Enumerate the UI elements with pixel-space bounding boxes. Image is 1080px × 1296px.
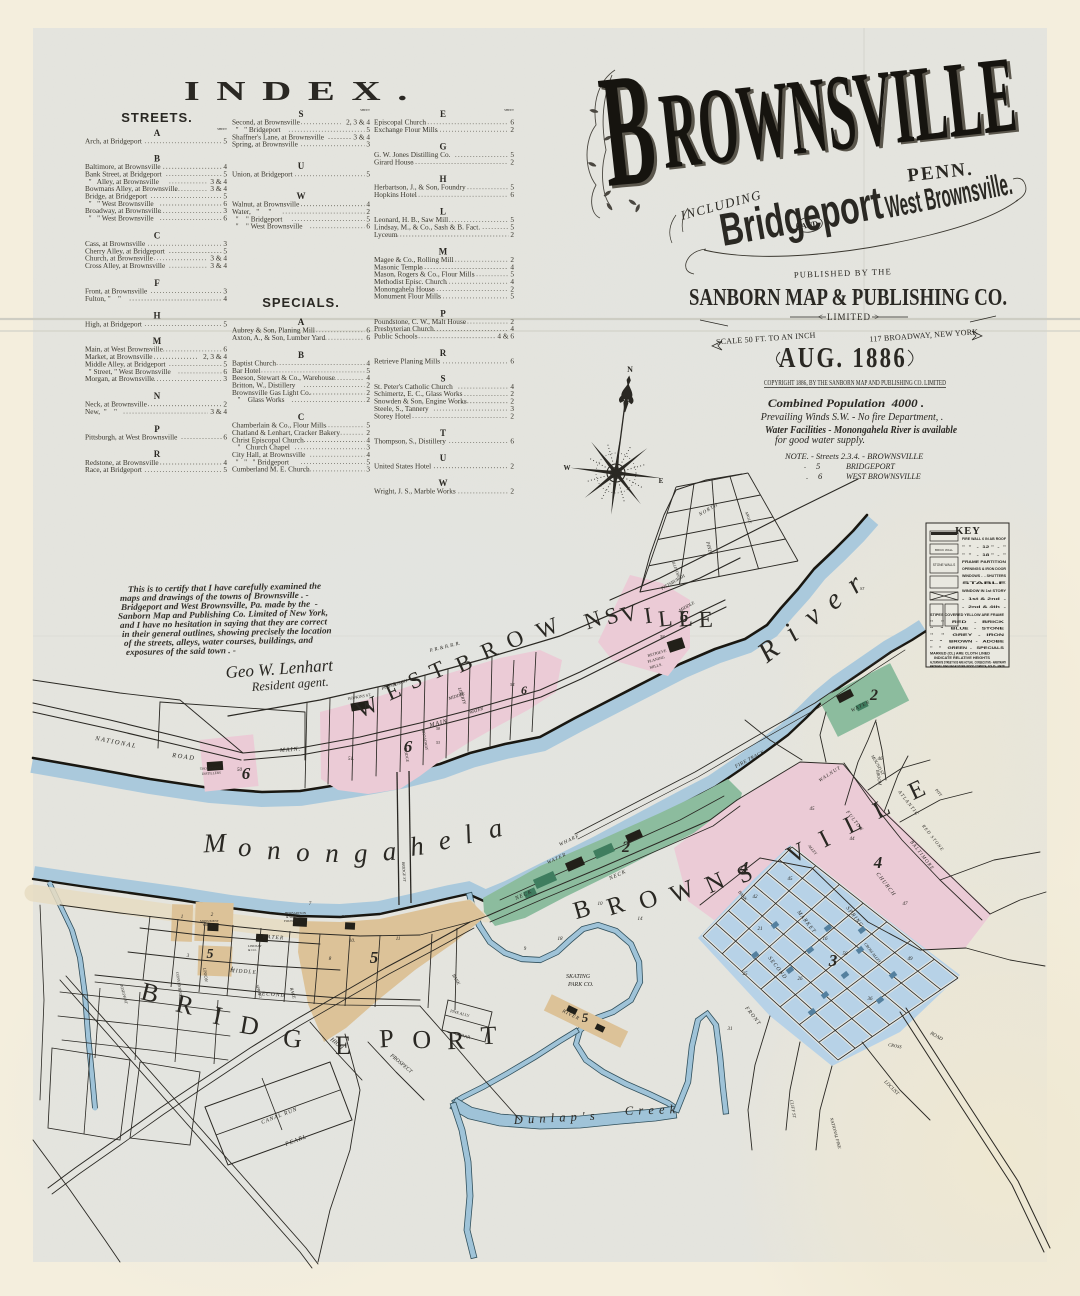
- svg-text:P: P: [379, 1024, 395, 1054]
- svg-text:2: 2: [510, 462, 514, 471]
- svg-text:.: .: [804, 461, 806, 470]
- svg-text:- 1st & 2nd -: - 1st & 2nd -: [962, 597, 1008, 601]
- svg-text:Cumberland M. E. Church: Cumberland M. E. Church: [232, 465, 310, 474]
- svg-text:3: 3: [366, 140, 370, 149]
- svg-text:E: E: [335, 1031, 351, 1060]
- svg-text:C r e e k: C r e e k: [625, 1102, 677, 1118]
- svg-text:WINDOWS - - SHUTTERS: WINDOWS - - SHUTTERS: [962, 574, 1007, 578]
- svg-text:Prevailing Winds S.W. - No fir: Prevailing Winds S.W. - No fire Departme…: [760, 412, 944, 423]
- svg-text:3: 3: [366, 465, 370, 474]
- svg-text:N: N: [627, 365, 633, 374]
- svg-text:.: .: [806, 472, 808, 481]
- svg-text:58: 58: [436, 726, 440, 731]
- svg-text:SHEET: SHEET: [217, 127, 227, 131]
- svg-text:5: 5: [223, 465, 227, 474]
- svg-text:COPYRIGHT 1886, BY THE SANBORN: COPYRIGHT 1886, BY THE SANBORN MAP AND P…: [764, 379, 946, 387]
- svg-text:AUG. 1886: AUG. 1886: [779, 343, 907, 374]
- svg-text:Wright, J. S., Marble Works: Wright, J. S., Marble Works: [374, 487, 456, 496]
- svg-text:6: 6: [242, 764, 251, 783]
- svg-text:6: 6: [521, 683, 527, 697]
- svg-text:for good water supply.: for good water supply.: [775, 435, 865, 446]
- svg-text:MILLS: MILLS: [203, 923, 213, 927]
- svg-text:2: 2: [510, 125, 514, 134]
- svg-text:Public Schools: Public Schools: [374, 332, 418, 341]
- svg-text:Union, at Bridgeport: Union, at Bridgeport: [232, 170, 293, 179]
- svg-text:5: 5: [366, 170, 370, 179]
- svg-text:4: 4: [873, 853, 883, 872]
- svg-text:21: 21: [758, 927, 763, 932]
- svg-text:2: 2: [869, 687, 878, 704]
- svg-text:Thompson, S., Distillery: Thompson, S., Distillery: [374, 436, 446, 445]
- svg-text:NOTE. - Streets 2.3.4. - BROWN: NOTE. - Streets 2.3.4. - BROWNSVILLE: [784, 451, 924, 461]
- svg-text:6: 6: [366, 333, 370, 342]
- svg-text:Combined Population 4000 .: Combined Population 4000 .: [768, 396, 924, 409]
- svg-text:a: a: [382, 836, 398, 867]
- svg-text:E: E: [698, 607, 713, 632]
- svg-text:Axton, A., & Son, Lumber Yard: Axton, A., & Son, Lumber Yard: [232, 333, 326, 342]
- svg-text:U: U: [298, 161, 305, 171]
- svg-text:58: 58: [660, 634, 665, 639]
- svg-text:26: 26: [798, 977, 804, 982]
- svg-text:E: E: [659, 477, 664, 485]
- svg-text:o: o: [237, 832, 252, 862]
- svg-text:6: 6: [366, 222, 370, 231]
- svg-text:Monument Flour Mills: Monument Flour Mills: [374, 292, 441, 301]
- svg-text:BRIDGEPORT: BRIDGEPORT: [846, 462, 895, 471]
- svg-text:High, at Bridgeport: High, at Bridgeport: [85, 319, 142, 328]
- svg-text:2: 2: [366, 395, 370, 404]
- svg-text:STONE WALLS: STONE WALLS: [933, 563, 956, 567]
- svg-text:Hopkins Hotel: Hopkins Hotel: [374, 190, 417, 199]
- svg-text:6: 6: [404, 737, 413, 756]
- svg-text:exposures of the said town . -: exposures of the said town . -: [126, 645, 236, 657]
- svg-text:11: 11: [396, 937, 401, 942]
- svg-text:STABLE: STABLE: [962, 581, 1008, 585]
- svg-text:PARK CO.: PARK CO.: [567, 982, 594, 988]
- svg-text:n: n: [266, 835, 281, 865]
- svg-text:Race, at Bridgeport: Race, at Bridgeport: [85, 465, 142, 474]
- svg-text:" Glass Works: " Glass Works: [232, 395, 285, 404]
- svg-text:" " West Brownsville: " " West Brownsville: [85, 214, 154, 223]
- svg-text:" " RED - BRICK: " " RED - BRICK: [930, 619, 1004, 624]
- svg-text:Spring, at Brownsville: Spring, at Brownsville: [232, 140, 298, 149]
- svg-text:2: 2: [510, 487, 514, 496]
- svg-text:5: 5: [816, 461, 820, 471]
- svg-text:BAR HO.: BAR HO.: [342, 914, 355, 918]
- svg-text:42: 42: [753, 895, 759, 900]
- svg-text:46: 46: [878, 757, 884, 762]
- svg-text:SANBORN MAP & PUBLISHING CO.: SANBORN MAP & PUBLISHING CO.: [689, 284, 1007, 311]
- svg-text:n: n: [325, 838, 339, 868]
- svg-text:Cross Alley, at Brownsville: Cross Alley, at Brownsville: [85, 261, 165, 270]
- svg-text:W: W: [564, 464, 571, 472]
- svg-text:3: 3: [223, 374, 227, 383]
- svg-text:FOUNDRY: FOUNDRY: [284, 919, 300, 923]
- svg-text:" " GREY - IRON: " " GREY - IRON: [930, 632, 1004, 637]
- svg-text:BRICK WALL: BRICK WALL: [935, 548, 953, 552]
- svg-text:44: 44: [850, 837, 856, 842]
- svg-text:2: 2: [510, 411, 514, 420]
- svg-text:R: R: [440, 348, 447, 358]
- svg-text:14: 14: [638, 917, 644, 922]
- svg-text:L: L: [657, 605, 674, 631]
- svg-text:SHEET: SHEET: [504, 108, 514, 112]
- svg-text:MARKED (CL) ARE CLOTH LINED: MARKED (CL) ARE CLOTH LINED: [930, 652, 990, 656]
- svg-text:C: C: [154, 230, 161, 240]
- svg-text:45: 45: [788, 877, 794, 882]
- svg-text:R: R: [447, 1026, 466, 1056]
- svg-text:3: 3: [828, 951, 838, 970]
- svg-text:18: 18: [558, 937, 564, 942]
- svg-text:5: 5: [370, 948, 379, 967]
- svg-text:31: 31: [728, 1027, 733, 1032]
- svg-text:5: 5: [223, 137, 227, 146]
- svg-text:6: 6: [223, 214, 227, 223]
- svg-text:3 & 4: 3 & 4: [210, 261, 227, 270]
- svg-text:6: 6: [510, 190, 514, 199]
- svg-text:6: 6: [223, 432, 227, 441]
- svg-text:2: 2: [621, 839, 630, 856]
- svg-text:45: 45: [810, 807, 816, 812]
- svg-text:Storey Hotel: Storey Hotel: [374, 411, 411, 420]
- svg-text:10.: 10.: [349, 939, 355, 944]
- svg-text:49: 49: [908, 957, 914, 962]
- svg-text:10: 10: [598, 902, 604, 907]
- svg-text:F: F: [154, 278, 160, 288]
- svg-text:5: 5: [207, 947, 214, 962]
- svg-text:Fulton, " ": Fulton, " ": [85, 294, 121, 303]
- svg-text:Pittsburgh, at West Brownsvill: Pittsburgh, at West Brownsville: [85, 432, 177, 441]
- svg-text:" " - 12 " - ": " " - 12 " - ": [962, 545, 1006, 549]
- svg-text:16: 16: [823, 937, 829, 942]
- svg-text:N: N: [154, 391, 161, 401]
- svg-text:Exchange Flour Mills: Exchange Flour Mills: [374, 125, 438, 134]
- svg-text:B: B: [298, 350, 304, 360]
- svg-text:3 & 4: 3 & 4: [210, 407, 227, 416]
- svg-text:O: O: [412, 1025, 432, 1055]
- svg-text:5: 5: [223, 319, 227, 328]
- svg-text:U: U: [440, 453, 447, 463]
- svg-text:& CO.: & CO.: [248, 948, 257, 952]
- svg-text:25: 25: [743, 972, 749, 977]
- svg-text:54: 54: [510, 682, 515, 687]
- svg-text:H: H: [153, 311, 160, 321]
- svg-text:E: E: [440, 109, 446, 119]
- svg-text:A: A: [154, 128, 161, 138]
- svg-text:T: T: [480, 1021, 497, 1051]
- svg-text:STIPES COVERED YELLOW ARE FRAM: STIPES COVERED YELLOW ARE FRAME: [930, 612, 1004, 617]
- svg-text:Arch, at Bridgeport: Arch, at Bridgeport: [85, 137, 142, 146]
- svg-text:SHEET: SHEET: [360, 108, 370, 112]
- svg-text:Retrieve Planing Mills: Retrieve Planing Mills: [374, 357, 440, 366]
- svg-text:47: 47: [903, 902, 909, 907]
- svg-text:51.: 51.: [348, 757, 354, 762]
- svg-text:KEY: KEY: [955, 526, 981, 537]
- svg-text:4 & 6: 4 & 6: [497, 332, 514, 341]
- svg-text:2: 2: [510, 157, 514, 166]
- svg-text:o: o: [296, 837, 310, 867]
- svg-text:2: 2: [510, 230, 514, 239]
- svg-text:" " GREEN - SPECIALS: " " GREEN - SPECIALS: [930, 645, 1005, 650]
- svg-text:FIRE WALL 6 IN AB ROOF: FIRE WALL 6 IN AB ROOF: [962, 537, 1007, 541]
- svg-text:g: g: [353, 838, 368, 868]
- svg-text:6: 6: [510, 357, 514, 366]
- svg-text:STREETS.: STREETS.: [121, 110, 193, 125]
- svg-text:BROKEN LINES NEAR STARS-WOOD C: BROKEN LINES NEAR STARS-WOOD CORNICE, SO…: [930, 665, 1006, 669]
- svg-text:1: 1: [181, 915, 184, 920]
- svg-text:M: M: [202, 828, 228, 859]
- svg-text:5: 5: [582, 1010, 589, 1025]
- svg-text:SKATING: SKATING: [566, 974, 591, 980]
- svg-text:United States Hotel: United States Hotel: [374, 462, 431, 471]
- svg-text:36: 36: [868, 997, 874, 1002]
- svg-text:" " BROWN - ADOBE: " " BROWN - ADOBE: [930, 639, 1005, 644]
- svg-text:OPENINGS & IRON DOOR: OPENINGS & IRON DOOR: [962, 567, 1006, 571]
- svg-text:New, " ": New, " ": [85, 407, 117, 416]
- svg-text:58: 58: [843, 952, 849, 957]
- svg-text:- 2nd & 4th -: - 2nd & 4th -: [962, 605, 1008, 609]
- svg-text:" " BLUE - STONE: " " BLUE - STONE: [930, 626, 1005, 631]
- svg-text:53: 53: [436, 740, 440, 745]
- svg-text:4: 4: [223, 294, 227, 303]
- svg-text:G: G: [282, 1023, 303, 1053]
- svg-text:Girard House: Girard House: [374, 157, 414, 166]
- svg-text:WINDOW IN 1st STORY: WINDOW IN 1st STORY: [962, 589, 1007, 593]
- svg-text:INDICATE RELATIVE HEIGHTS: INDICATE RELATIVE HEIGHTS: [934, 656, 991, 660]
- svg-text:5: 5: [510, 292, 514, 301]
- svg-text:4: 4: [739, 858, 749, 877]
- svg-text:< LIMITED >: < LIMITED >: [818, 312, 881, 322]
- svg-text:SPECIALS.: SPECIALS.: [262, 295, 340, 310]
- svg-text:" " - 18 " - ": " " - 18 " - ": [962, 553, 1006, 557]
- svg-text:Morgan, at Brownsville: Morgan, at Brownsville: [85, 374, 154, 383]
- svg-text:6: 6: [680, 607, 689, 626]
- svg-text:" " West Brownsville: " " West Brownsville: [232, 222, 303, 231]
- svg-text:INDEX.: INDEX.: [184, 75, 424, 106]
- svg-text:Lyceum: Lyceum: [374, 230, 398, 239]
- svg-text:6: 6: [510, 436, 514, 445]
- svg-text:FRAME PARTITION: FRAME PARTITION: [962, 560, 1007, 564]
